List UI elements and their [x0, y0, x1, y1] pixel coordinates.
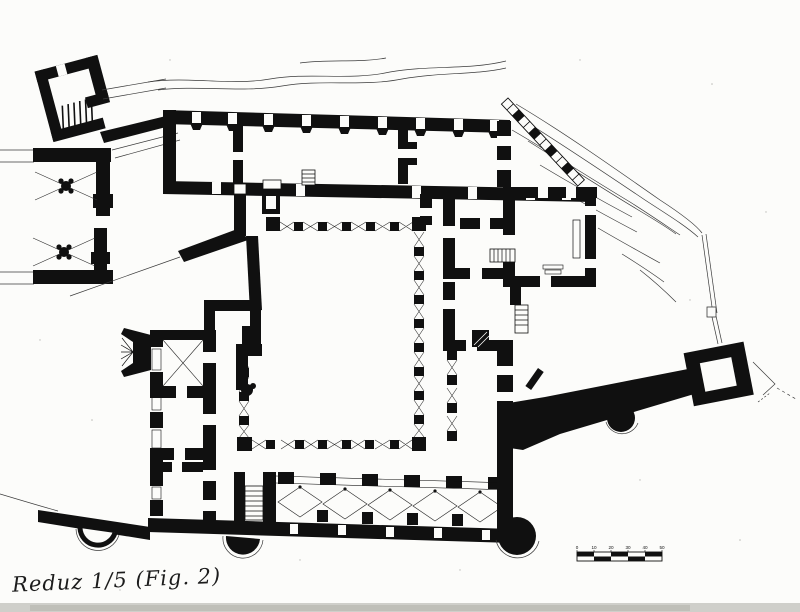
rampart [497, 342, 754, 530]
east-stair [515, 305, 528, 333]
ramp-hatched-wall [501, 98, 584, 186]
south-stair [245, 486, 263, 520]
scanned-floor-plan-page: 0 10 20 30 40 50 Reduz 1/5 (Fig. 2) [0, 0, 800, 612]
cloister-courtyard [237, 217, 426, 451]
cloister-vault-x-lines [239, 222, 424, 449]
floor-plan-drawing: 0 10 20 30 40 50 [0, 0, 800, 612]
gallery-vault-diamonds [278, 487, 502, 522]
quatrefoil-piers [56, 178, 73, 259]
masonry-hatch-block [472, 330, 489, 347]
southeast-walk [447, 350, 457, 441]
range-stair [490, 249, 515, 262]
scan-edge-streak-dark [30, 605, 690, 611]
south-center-bastion [223, 536, 263, 558]
scale-label: 20 [608, 545, 614, 550]
cloister-piers [237, 217, 426, 451]
square-tower [684, 342, 754, 407]
east-rooms [420, 194, 528, 410]
portal-trumpet [121, 328, 151, 377]
west-annex-wing [0, 148, 113, 284]
scale-label: 30 [625, 545, 631, 550]
west-range [121, 328, 216, 466]
scale-label: 40 [642, 545, 648, 550]
stair-ladder [302, 170, 315, 185]
scale-label: 50 [659, 545, 665, 550]
scale-bar: 0 10 20 30 40 50 [576, 545, 665, 561]
scale-label: 0 [576, 545, 579, 550]
scale-label: 10 [591, 545, 597, 550]
south-range [38, 452, 539, 558]
